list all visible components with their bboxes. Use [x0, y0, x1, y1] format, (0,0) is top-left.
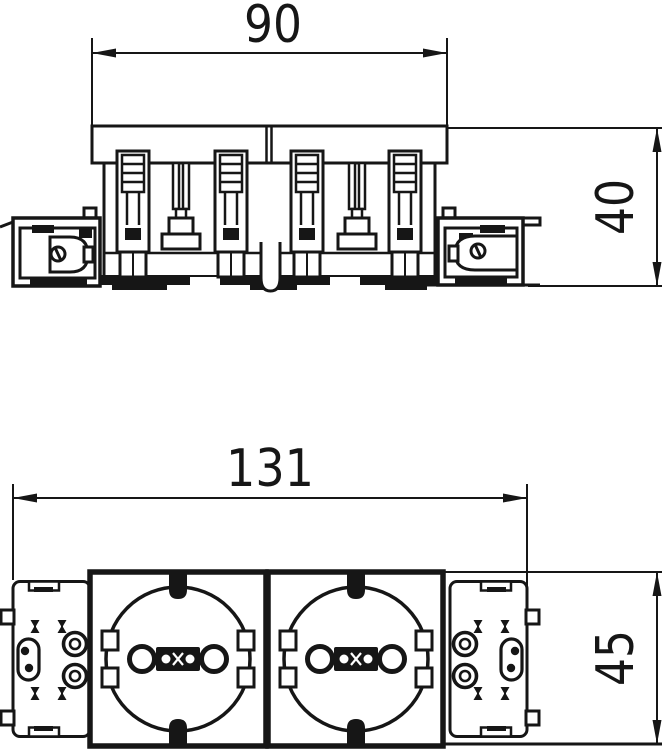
centre-capsule	[261, 242, 280, 291]
dim-label-131: 131	[226, 439, 314, 499]
technical-drawing-socket-module: 90	[0, 0, 669, 751]
left-end-piece	[1, 582, 90, 737]
side-body	[92, 126, 447, 291]
bottom-view: 131 45	[1, 439, 662, 746]
clamp-tower	[291, 151, 323, 277]
arrowhead-left	[13, 494, 37, 503]
earth-fork	[338, 163, 376, 249]
right-mount-block	[423, 208, 540, 285]
left-mount-block	[0, 208, 100, 286]
clamp-tower	[117, 151, 149, 277]
clamp-tower	[215, 151, 247, 277]
arrowhead-down	[653, 262, 662, 286]
dim-label-90: 90	[244, 0, 302, 55]
arrowhead-right	[423, 49, 447, 58]
dim-label-45: 45	[586, 630, 646, 686]
arrowhead-down	[653, 720, 662, 744]
dim-label-40: 40	[586, 179, 646, 235]
earth-fork	[162, 163, 200, 249]
arrowhead-up	[653, 572, 662, 596]
arrowhead-left	[92, 49, 116, 58]
right-end-piece	[450, 582, 539, 737]
drawing-svg: 90	[0, 0, 669, 751]
arrowhead-right	[503, 494, 527, 503]
top-view: 90	[0, 0, 662, 291]
clamp-tower	[389, 151, 421, 277]
arrowhead-up	[653, 128, 662, 152]
